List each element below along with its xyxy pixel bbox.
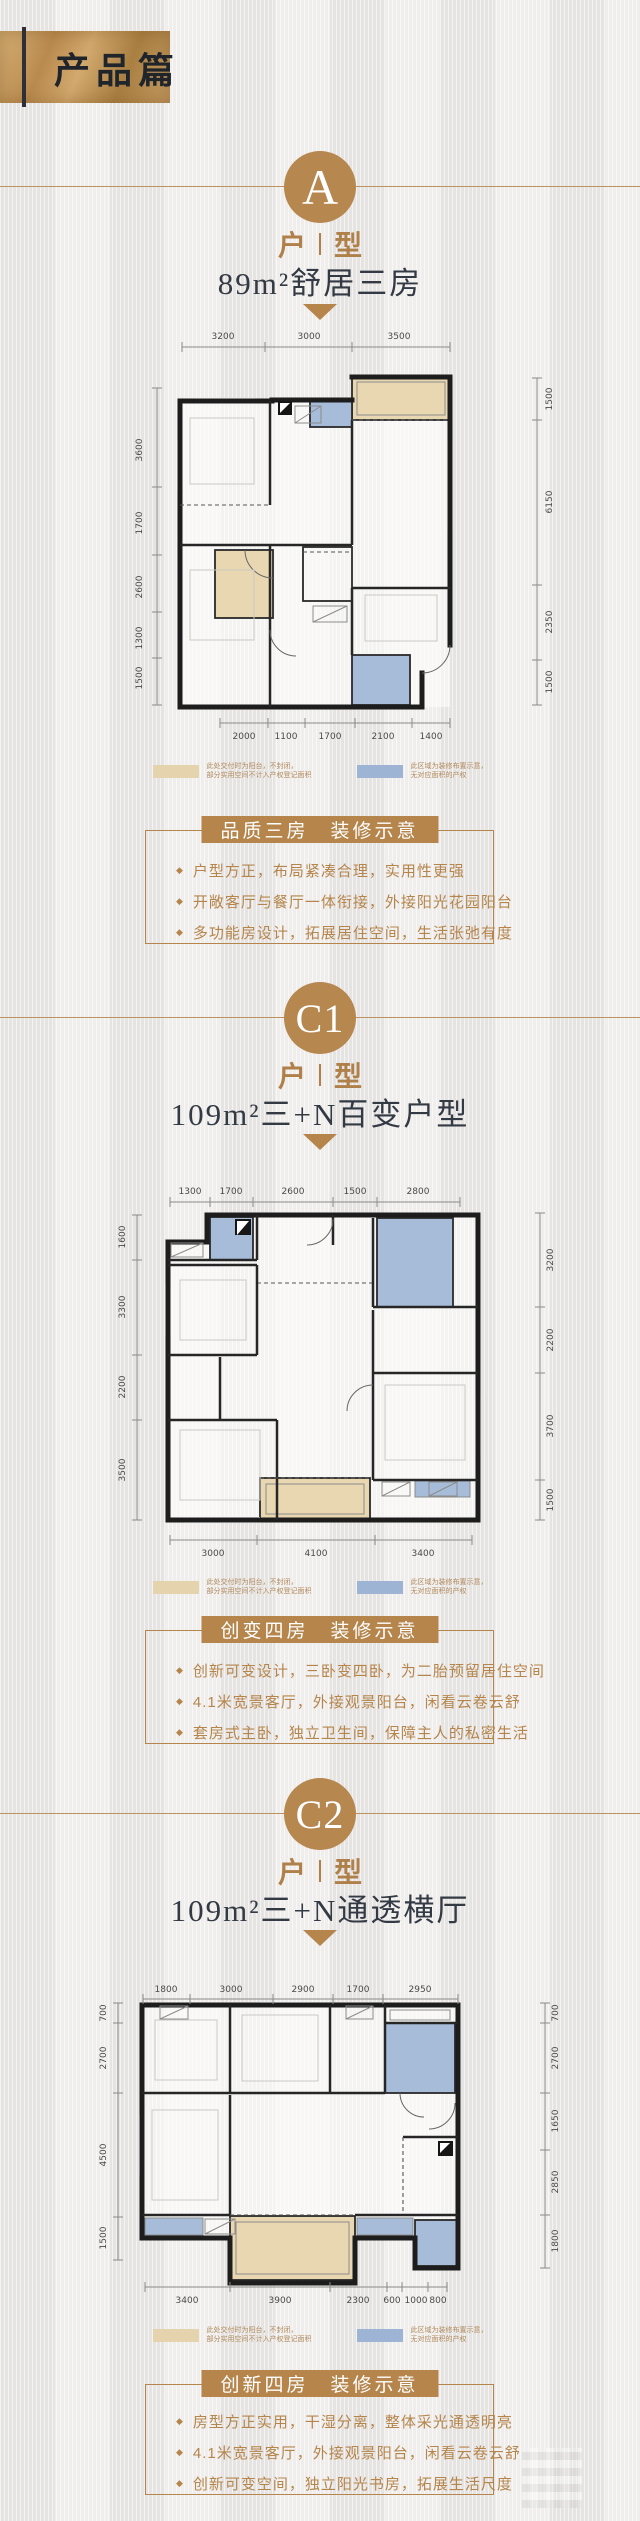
dim-label: 3400 <box>176 2296 199 2306</box>
unit-badge-c1: C1 <box>284 982 356 1054</box>
dim-label: 1700 <box>135 511 145 534</box>
info-title: 创新四房 装修示意 <box>201 2370 438 2397</box>
dim-label: 1800 <box>155 1985 178 1995</box>
ac-platform-area <box>145 2218 203 2235</box>
legend-text: 无对应面积的产权 <box>411 771 488 780</box>
diamond-bullet-icon: ◆ <box>176 1696 184 1707</box>
unit-badge-c2: C2 <box>284 1778 356 1850</box>
legend-text: 此处交付时为阳台，不封闭， <box>207 1578 312 1587</box>
bath-area <box>385 2023 455 2093</box>
legend-text: 部分实用空间不计入产权登记面积 <box>207 1587 312 1596</box>
watermark-block <box>522 2448 582 2508</box>
dim-label: 3200 <box>546 1248 556 1271</box>
feature-bullet: ◆多功能房设计，拓展居住空间，生活张弛有度 <box>176 917 493 948</box>
dim-label: 2200 <box>546 1328 556 1351</box>
info-title: 品质三房 装修示意 <box>201 816 438 843</box>
legend-text: 部分实用空间不计入产权登记面积 <box>207 2335 312 2344</box>
unit-badge-a: A <box>284 151 356 223</box>
header-accent-bar <box>22 27 26 107</box>
decor-swatch <box>357 1581 403 1594</box>
dim-label: 4100 <box>305 1549 328 1559</box>
floor-plan-c1: 1300 1700 2600 1500 2800 1600 3300 2200 … <box>85 1185 565 1565</box>
dim-label: 1500 <box>344 1187 367 1197</box>
balcony-swatch <box>153 2329 199 2342</box>
down-triangle-icon <box>303 1134 337 1150</box>
dim-label: 1300 <box>135 626 145 649</box>
feature-bullet: ◆房型方正实用，干湿分离，整体采光通透明亮 <box>176 2406 493 2437</box>
dim-label: 2900 <box>292 1985 315 1995</box>
dim-label: 3500 <box>118 1458 128 1481</box>
floor-plan-a: 3200 3000 3500 3600 1700 2600 1300 1500 … <box>85 330 565 750</box>
plan-legend: 此处交付时为阳台，不封闭， 部分实用空间不计入产权登记面积 此区域为装修布置示意… <box>0 2326 640 2344</box>
dim-label: 1500 <box>545 670 555 693</box>
ac-platform-area <box>357 2218 413 2235</box>
dim-label: 1700 <box>220 1187 243 1197</box>
bath-area <box>352 655 410 705</box>
dim-label: 3300 <box>118 1295 128 1318</box>
dim-label: 1500 <box>546 1488 556 1511</box>
dim-label: 600 <box>383 2296 400 2306</box>
legend-text: 此区域为装修布置示意， <box>411 1578 488 1587</box>
dim-label: 2350 <box>545 610 555 633</box>
legend-text: 此区域为装修布置示意， <box>411 762 488 771</box>
dim-label: 3200 <box>212 332 235 342</box>
unit-info-box-a: 品质三房 装修示意 ◆户型方正，布局紧凑合理，实用性更强 ◆开敞客厅与餐厅一体衔… <box>145 830 494 944</box>
floor-plan-c2: 1800 3000 2900 1700 2950 700 2700 4500 1… <box>60 1985 600 2315</box>
type-separator <box>319 1860 321 1882</box>
unit-info-box-c2: 创新四房 装修示意 ◆房型方正实用，干湿分离，整体采光通透明亮 ◆4.1米宽景客… <box>145 2384 494 2495</box>
legend-text: 无对应面积的产权 <box>411 2335 488 2344</box>
down-triangle-icon <box>303 304 337 320</box>
dim-label: 2850 <box>551 2170 561 2193</box>
dim-label: 2300 <box>347 2296 370 2306</box>
dim-label: 3900 <box>269 2296 292 2306</box>
feature-bullet: ◆套房式主卧，独立卫生间，保障主人的私密生活 <box>176 1717 493 1748</box>
legend-text: 部分实用空间不计入产权登记面积 <box>207 771 312 780</box>
unit-subtitle-c1: 109m²三+N百变户型 <box>0 1089 640 1134</box>
dim-label: 2700 <box>99 2046 109 2069</box>
legend-text: 此区域为装修布置示意， <box>411 2326 488 2335</box>
legend-text: 此处交付时为阳台，不封闭， <box>207 2326 312 2335</box>
dim-label: 1500 <box>99 2226 109 2249</box>
dim-label: 1800 <box>551 2229 561 2252</box>
poster-canvas: 产品篇 A 户 型 89m²舒居三房 <box>0 0 640 2521</box>
diamond-bullet-icon: ◆ <box>176 1665 184 1676</box>
dim-label: 2200 <box>118 1375 128 1398</box>
unit-subtitle-c2: 109m²三+N通透横厅 <box>0 1885 640 1930</box>
diamond-bullet-icon: ◆ <box>176 2447 184 2458</box>
dim-label: 1400 <box>420 732 443 742</box>
dim-label: 1650 <box>551 2109 561 2132</box>
info-title: 创变四房 装修示意 <box>201 1616 438 1643</box>
down-triangle-icon <box>303 1930 337 1946</box>
dim-label: 700 <box>99 2004 109 2021</box>
diamond-bullet-icon: ◆ <box>176 927 184 938</box>
dim-label: 3000 <box>202 1549 225 1559</box>
dim-label: 1700 <box>319 732 342 742</box>
legend-text: 此处交付时为阳台，不封闭， <box>207 762 312 771</box>
dim-label: 3600 <box>135 438 145 461</box>
dim-label: 800 <box>429 2296 446 2306</box>
dim-label: 3700 <box>546 1414 556 1437</box>
dim-label: 1100 <box>275 732 298 742</box>
dim-label: 2000 <box>233 732 256 742</box>
diamond-bullet-icon: ◆ <box>176 2478 184 2489</box>
unit-info-box-c1: 创变四房 装修示意 ◆创新可变设计，三卧变四卧，为二胎预留居住空间 ◆4.1米宽… <box>145 1630 494 1744</box>
dim-label: 2600 <box>282 1187 305 1197</box>
diamond-bullet-icon: ◆ <box>176 1727 184 1738</box>
dim-label: 1600 <box>118 1225 128 1248</box>
feature-bullet: ◆创新可变空间，独立阳光书房，拓展生活尺度 <box>176 2468 493 2499</box>
type-separator <box>319 233 321 255</box>
bath-area <box>377 1218 453 1307</box>
dim-label: 1500 <box>545 387 555 410</box>
kitchen-balcony-area <box>215 550 273 618</box>
dim-label: 3000 <box>220 1985 243 1995</box>
feature-bullet: ◆创新可变设计，三卧变四卧，为二胎预留居住空间 <box>176 1655 493 1686</box>
dim-label: 6150 <box>545 490 555 513</box>
dim-label: 3500 <box>388 332 411 342</box>
dim-label: 2950 <box>409 1985 432 1995</box>
dim-label: 1500 <box>135 666 145 689</box>
dim-label: 700 <box>551 2004 561 2021</box>
diamond-bullet-icon: ◆ <box>176 896 184 907</box>
dim-label: 1300 <box>179 1187 202 1197</box>
dim-label: 1000 <box>405 2296 428 2306</box>
decor-swatch <box>357 765 403 778</box>
feature-bullet: ◆4.1米宽景客厅，外接观景阳台，闲看云卷云舒 <box>176 1686 493 1717</box>
feature-bullet: ◆户型方正，布局紧凑合理，实用性更强 <box>176 855 493 886</box>
diamond-bullet-icon: ◆ <box>176 865 184 876</box>
plan-legend: 此处交付时为阳台，不封闭， 部分实用空间不计入产权登记面积 此区域为装修布置示意… <box>0 1578 640 1596</box>
dim-label: 2800 <box>407 1187 430 1197</box>
dim-label: 4500 <box>99 2143 109 2166</box>
balcony-swatch <box>153 1581 199 1594</box>
dim-label: 3400 <box>412 1549 435 1559</box>
balcony-area <box>352 377 450 420</box>
decor-swatch <box>357 2329 403 2342</box>
balcony-area <box>230 2216 355 2280</box>
dim-label: 2600 <box>135 575 145 598</box>
page-title: 产品篇 <box>54 42 180 94</box>
plan-legend: 此处交付时为阳台，不封闭， 部分实用空间不计入产权登记面积 此区域为装修布置示意… <box>0 762 640 780</box>
dim-label: 2700 <box>551 2046 561 2069</box>
feature-bullet: ◆开敞客厅与餐厅一体衔接，外接阳光花园阳台 <box>176 886 493 917</box>
dim-label: 3000 <box>298 332 321 342</box>
feature-bullet: ◆4.1米宽景客厅，外接观景阳台，闲看云卷云舒 <box>176 2437 493 2468</box>
diamond-bullet-icon: ◆ <box>176 2416 184 2427</box>
dim-label: 2100 <box>372 732 395 742</box>
unit-subtitle-a: 89m²舒居三房 <box>0 258 640 303</box>
bath-area <box>415 2220 458 2266</box>
legend-text: 无对应面积的产权 <box>411 1587 488 1596</box>
balcony-swatch <box>153 765 199 778</box>
type-separator <box>319 1064 321 1086</box>
dim-label: 1700 <box>347 1985 370 1995</box>
